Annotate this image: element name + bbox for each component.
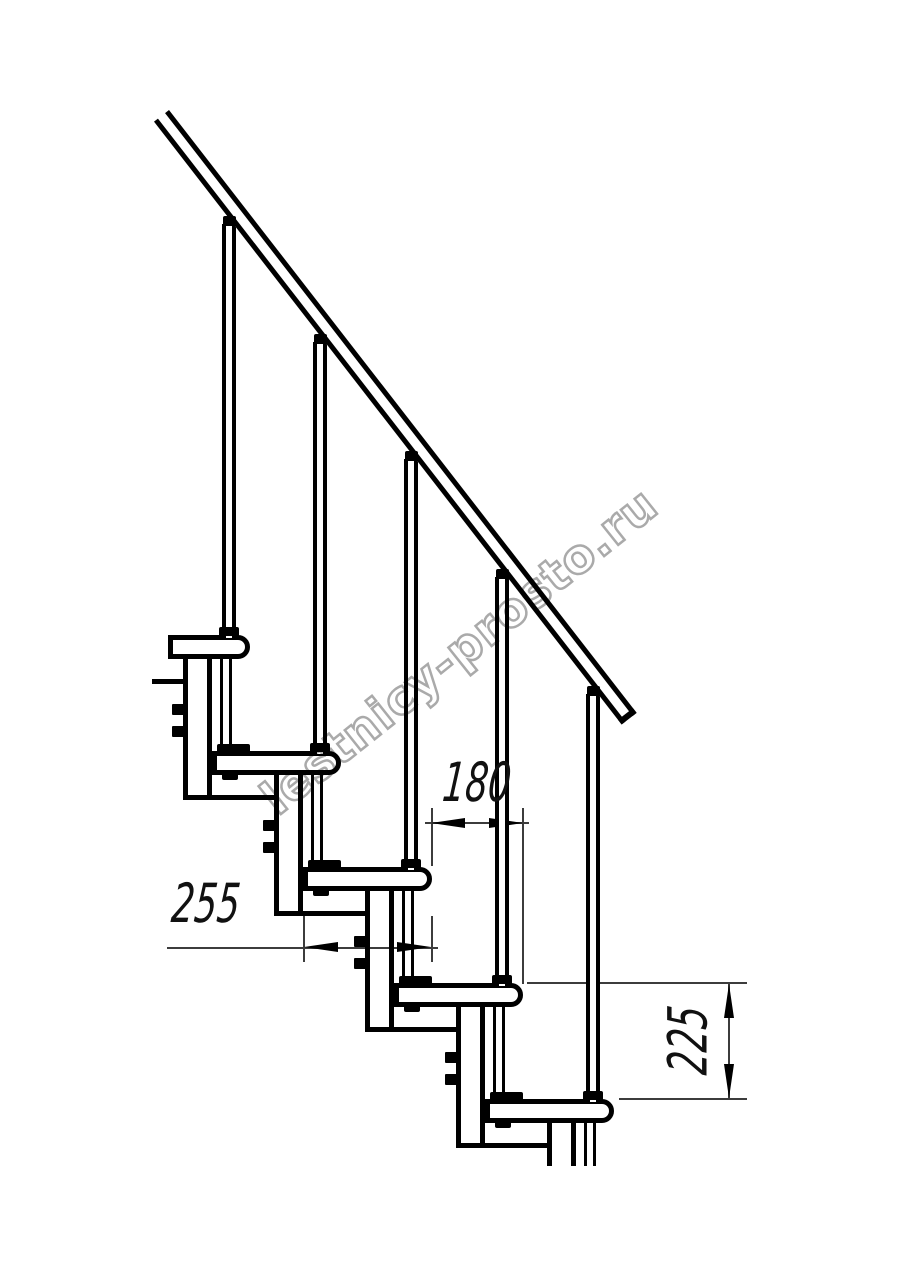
side-bolt xyxy=(172,726,184,737)
baluster xyxy=(313,342,327,754)
baluster-top-cap xyxy=(587,686,600,696)
dim-extension-line xyxy=(303,912,305,962)
tread xyxy=(168,635,250,659)
flange-plate xyxy=(217,744,250,752)
connector-rod xyxy=(402,890,414,983)
bolt-nub xyxy=(495,1119,511,1128)
side-bolt xyxy=(354,936,366,947)
dim-extension-line xyxy=(431,808,433,866)
baluster xyxy=(222,224,236,638)
module-bottom-bar xyxy=(152,679,183,684)
flange-plate xyxy=(308,860,341,868)
module-bottom-bar xyxy=(365,1027,461,1032)
staircase-drawing: 180 255 225 lestnicy-prosto.ru xyxy=(0,0,914,1280)
dim-label-step-run: 180 xyxy=(440,751,514,814)
side-bolt xyxy=(445,1074,457,1085)
side-bolt xyxy=(445,1052,457,1063)
dim-extension-line xyxy=(522,808,524,984)
baluster-base-mount xyxy=(492,975,512,984)
side-bolt xyxy=(172,704,184,715)
dim-extension-line xyxy=(527,982,747,984)
baluster-base-mount xyxy=(583,1091,603,1100)
dim-arrow xyxy=(724,1064,734,1098)
baluster-base-mount xyxy=(219,627,239,636)
connector-rod xyxy=(220,658,232,751)
support-plate xyxy=(183,658,212,800)
bolt-nub xyxy=(313,887,329,896)
baluster-top-cap xyxy=(223,216,236,226)
connector-rod xyxy=(493,1006,505,1099)
dim-arrow xyxy=(431,818,465,828)
dim-extension-line xyxy=(431,916,433,962)
bolt-nub xyxy=(404,1003,420,1012)
module-bottom-bar xyxy=(456,1143,552,1148)
module-bottom-bar xyxy=(274,911,370,916)
flange-plate xyxy=(399,976,432,984)
dim-arrow xyxy=(724,984,734,1018)
connector-rod xyxy=(584,1122,596,1166)
baluster-top-cap xyxy=(405,451,418,461)
dim-label-step-rise: 225 xyxy=(657,1003,720,1077)
dim-label-tread-depth: 255 xyxy=(169,872,243,935)
baluster-top-cap xyxy=(314,334,327,344)
side-bolt xyxy=(354,958,366,969)
bolt-nub xyxy=(222,771,238,780)
flange-plate xyxy=(490,1092,523,1100)
baluster-base-mount xyxy=(401,859,421,868)
baluster xyxy=(586,694,600,1102)
dim-arrow xyxy=(304,942,338,952)
